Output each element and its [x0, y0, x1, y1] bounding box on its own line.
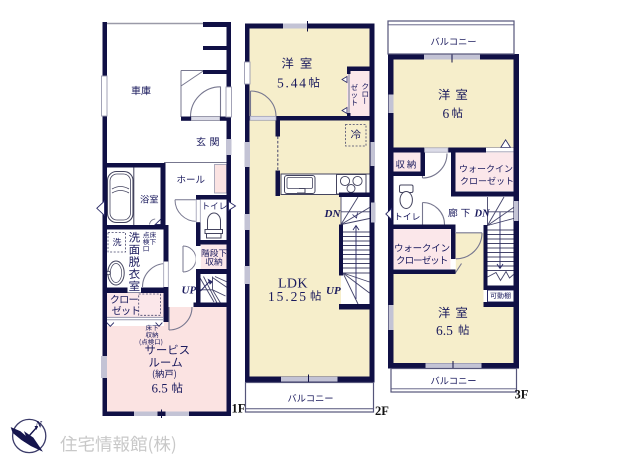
svg-text:6: 6: [443, 106, 450, 121]
svg-text:6.5: 6.5: [436, 323, 453, 338]
svg-text:DN: DN: [474, 209, 491, 220]
svg-text:1F: 1F: [232, 402, 246, 416]
svg-text:6.5: 6.5: [152, 381, 168, 396]
svg-text:UP: UP: [326, 285, 341, 297]
svg-text:2F: 2F: [375, 404, 389, 418]
svg-text:15.25: 15.25: [268, 289, 306, 304]
svg-text:3F: 3F: [515, 388, 529, 402]
svg-text:DN: DN: [324, 208, 342, 220]
svg-text:5.44: 5.44: [277, 76, 306, 91]
svg-text:N: N: [35, 420, 43, 430]
svg-text:UP: UP: [182, 285, 197, 297]
